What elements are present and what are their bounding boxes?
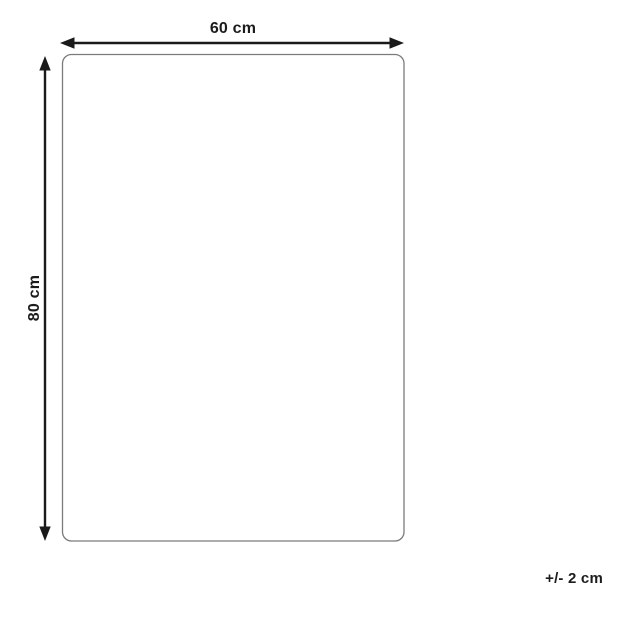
width-arrowhead-right-icon (390, 37, 405, 48)
height-dimension-label: 80 cm (26, 275, 44, 321)
height-arrowhead-bottom-icon (39, 527, 50, 542)
height-arrowhead-top-icon (39, 56, 50, 71)
width-arrowhead-left-icon (60, 37, 75, 48)
diagram-drawing (0, 0, 633, 619)
product-outline-rect (63, 55, 405, 542)
width-dimension-label: 60 cm (62, 20, 404, 38)
tolerance-label: +/- 2 cm (545, 570, 603, 587)
dimension-diagram: 60 cm 80 cm +/- 2 cm (0, 0, 633, 619)
width-dimension-arrow (60, 37, 404, 48)
